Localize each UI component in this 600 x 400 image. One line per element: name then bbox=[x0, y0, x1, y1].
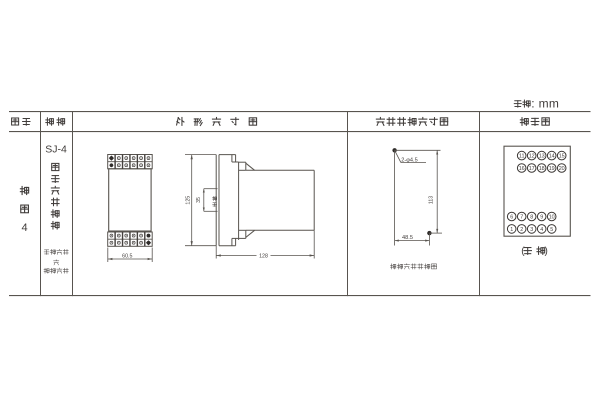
svg-text:5: 5 bbox=[550, 227, 553, 233]
svg-text:15: 15 bbox=[559, 154, 565, 160]
svg-text:19: 19 bbox=[549, 166, 555, 172]
svg-text:6: 6 bbox=[510, 215, 513, 221]
svg-text:60.5: 60.5 bbox=[122, 253, 132, 259]
svg-text:48.5: 48.5 bbox=[402, 235, 413, 241]
svg-text:128: 128 bbox=[259, 253, 268, 259]
svg-text:4: 4 bbox=[22, 222, 28, 234]
svg-text:SJ-4: SJ-4 bbox=[45, 144, 67, 156]
svg-text:3: 3 bbox=[530, 227, 533, 233]
svg-text:113: 113 bbox=[429, 196, 435, 204]
svg-text:9: 9 bbox=[540, 215, 543, 221]
svg-text:7: 7 bbox=[520, 215, 523, 221]
svg-text:125: 125 bbox=[185, 196, 191, 205]
svg-text:2: 2 bbox=[520, 227, 523, 233]
svg-text:20: 20 bbox=[559, 166, 565, 172]
svg-text:12: 12 bbox=[529, 154, 535, 160]
svg-text:2-φ4.5: 2-φ4.5 bbox=[401, 157, 417, 163]
svg-text:18: 18 bbox=[539, 166, 545, 172]
svg-text:16: 16 bbox=[519, 166, 525, 172]
svg-text:11: 11 bbox=[519, 154, 525, 160]
svg-text:17: 17 bbox=[529, 166, 535, 172]
svg-text:13: 13 bbox=[539, 154, 545, 160]
svg-text:14: 14 bbox=[549, 154, 555, 160]
svg-text:10: 10 bbox=[549, 215, 555, 221]
svg-text:8: 8 bbox=[530, 215, 533, 221]
svg-text:): ) bbox=[545, 246, 548, 257]
svg-text:1: 1 bbox=[510, 227, 513, 233]
svg-text:4: 4 bbox=[540, 227, 543, 233]
svg-text:35: 35 bbox=[196, 197, 202, 203]
svg-text:: mm: : mm bbox=[531, 97, 559, 111]
